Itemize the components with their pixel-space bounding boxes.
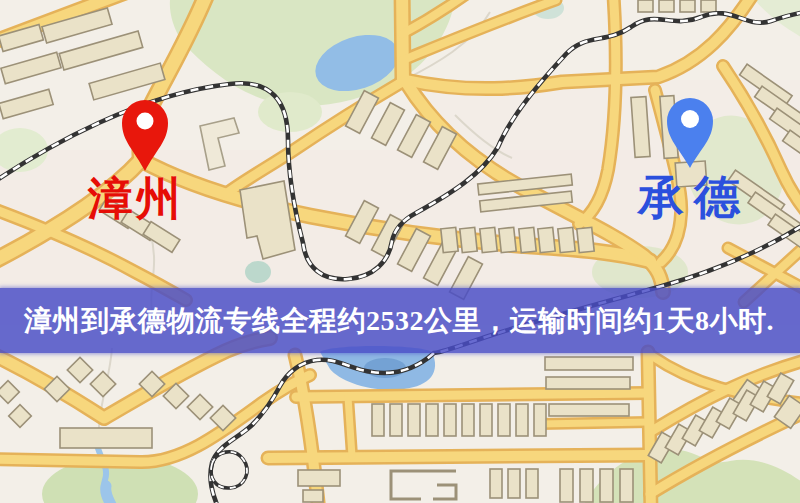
route-info-banner: 漳州到承德物流专线全程约2532公里，运输时间约1天8小时. (0, 288, 800, 353)
map-graphics (0, 0, 800, 503)
route-map: 漳州 承德 漳州到承德物流专线全程约2532公里，运输时间约1天8小时. (0, 0, 800, 503)
origin-city-label: 漳州 (88, 177, 184, 222)
route-info-text: 漳州到承德物流专线全程约2532公里，运输时间约1天8小时. (24, 302, 774, 340)
destination-city-label: 承德 (638, 175, 750, 221)
